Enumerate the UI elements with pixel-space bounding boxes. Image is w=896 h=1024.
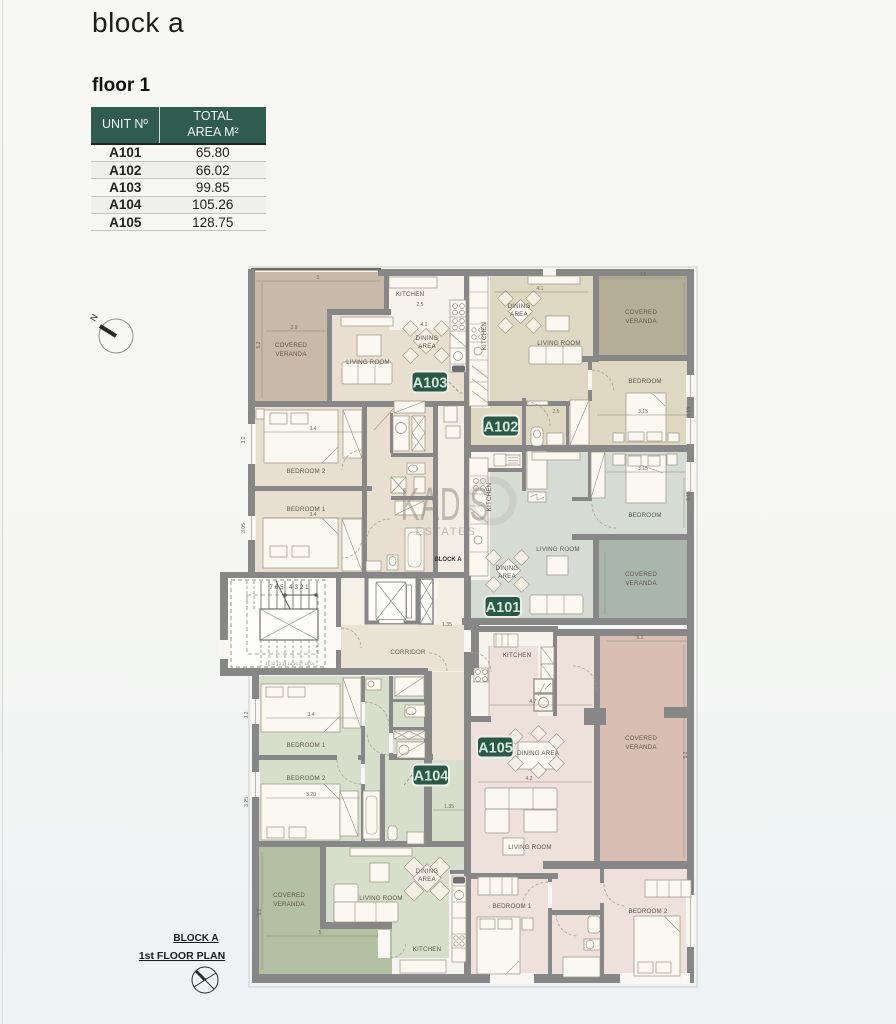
svg-text:5: 5: [317, 275, 320, 281]
svg-text:4.1: 4.1: [537, 286, 544, 292]
svg-text:LIVING ROOM: LIVING ROOM: [537, 340, 580, 347]
svg-text:VERANDA: VERANDA: [625, 318, 657, 325]
svg-text:5.2: 5.2: [683, 751, 689, 758]
svg-text:COVERED: COVERED: [275, 342, 307, 349]
svg-text:5.2: 5.2: [257, 908, 263, 915]
svg-text:KITCHEN: KITCHEN: [503, 652, 532, 659]
svg-text:AREA: AREA: [418, 343, 436, 350]
svg-text:BEDROOM 2: BEDROOM 2: [287, 775, 326, 782]
svg-text:AREA: AREA: [498, 573, 516, 580]
svg-text:DINING: DINING: [416, 335, 439, 342]
svg-text:3.2: 3.2: [244, 711, 250, 718]
svg-text:BEDROOM 1: BEDROOM 1: [287, 742, 326, 749]
svg-text:4.2: 4.2: [526, 776, 533, 782]
svg-text:5.1: 5.1: [637, 635, 644, 641]
svg-text:3.25: 3.25: [244, 797, 250, 807]
svg-text:3.20: 3.20: [306, 792, 316, 798]
svg-text:DINING AREA: DINING AREA: [517, 750, 560, 757]
svg-text:3.15: 3.15: [686, 491, 692, 501]
svg-text:3.4: 3.4: [308, 712, 315, 718]
svg-text:A105: A105: [478, 741, 513, 757]
svg-text:VERANDA: VERANDA: [625, 580, 657, 587]
svg-text:A102: A102: [484, 420, 519, 436]
svg-text:3.4: 3.4: [310, 426, 317, 432]
svg-text:COVERED: COVERED: [625, 735, 657, 742]
svg-text:3.15: 3.15: [638, 409, 648, 415]
svg-text:AREA: AREA: [418, 876, 436, 883]
svg-text:LIVING ROOM: LIVING ROOM: [508, 844, 551, 851]
svg-text:A101: A101: [486, 600, 521, 616]
svg-text:KITCHEN: KITCHEN: [396, 291, 425, 298]
svg-text:A104: A104: [414, 769, 449, 785]
svg-text:N: N: [88, 312, 100, 323]
svg-text:BEDROOM: BEDROOM: [628, 378, 661, 385]
svg-text:BEDROOM 2: BEDROOM 2: [287, 468, 326, 475]
svg-text:BEDROOM 1: BEDROOM 1: [493, 903, 532, 910]
svg-text:KITCHEN: KITCHEN: [481, 322, 488, 351]
svg-text:3.2: 3.2: [241, 436, 247, 443]
svg-text:DINING: DINING: [496, 565, 519, 572]
svg-text:DINING: DINING: [416, 868, 439, 875]
svg-text:11 12 13 14 15 16 17 18 19: 11 12 13 14 15 16 17 18 19: [266, 661, 315, 666]
svg-text:CORRIDOR: CORRIDOR: [390, 649, 426, 656]
svg-text:BLOCK A: BLOCK A: [434, 557, 462, 563]
svg-text:LIVING ROOM: LIVING ROOM: [346, 359, 389, 366]
svg-text:BEDROOM 2: BEDROOM 2: [629, 908, 668, 915]
svg-text:3.15: 3.15: [686, 407, 692, 417]
svg-text:BEDROOM: BEDROOM: [628, 512, 661, 519]
svg-text:1.35: 1.35: [442, 622, 452, 628]
svg-text:5: 5: [319, 930, 322, 936]
svg-text:1.35: 1.35: [444, 804, 454, 810]
svg-text:2.5: 2.5: [417, 302, 424, 308]
svg-text:765 4321: 765 4321: [269, 585, 310, 591]
svg-text:ESTATES: ESTATES: [415, 526, 476, 538]
svg-text:VERANDA: VERANDA: [625, 744, 657, 751]
svg-text:4.1: 4.1: [421, 322, 428, 328]
svg-text:5.2: 5.2: [256, 341, 262, 348]
svg-text:LIVING ROOM: LIVING ROOM: [359, 895, 402, 902]
svg-text:COVERED: COVERED: [625, 571, 657, 578]
svg-text:LIVING ROOM: LIVING ROOM: [536, 546, 579, 553]
svg-text:KITCHEN: KITCHEN: [413, 946, 442, 953]
svg-text:4.7: 4.7: [530, 699, 537, 705]
svg-text:2.9: 2.9: [291, 325, 298, 331]
svg-text:1st FLOOR PLAN: 1st FLOOR PLAN: [139, 950, 225, 962]
svg-text:BLOCK A: BLOCK A: [173, 933, 218, 944]
svg-text:A103: A103: [413, 376, 448, 392]
svg-text:COVERED: COVERED: [273, 892, 305, 899]
svg-text:2.5: 2.5: [553, 409, 560, 415]
svg-text:3.05: 3.05: [241, 523, 247, 533]
svg-text:3.6: 3.6: [640, 272, 647, 278]
svg-text:BEDROOM 1: BEDROOM 1: [287, 506, 326, 513]
svg-text:VERANDA: VERANDA: [273, 901, 305, 908]
svg-text:3.15: 3.15: [638, 466, 648, 472]
svg-text:VERANDA: VERANDA: [275, 351, 307, 358]
svg-text:DINING: DINING: [508, 303, 531, 310]
svg-text:AREA: AREA: [510, 311, 528, 318]
svg-text:COVERED: COVERED: [625, 309, 657, 316]
